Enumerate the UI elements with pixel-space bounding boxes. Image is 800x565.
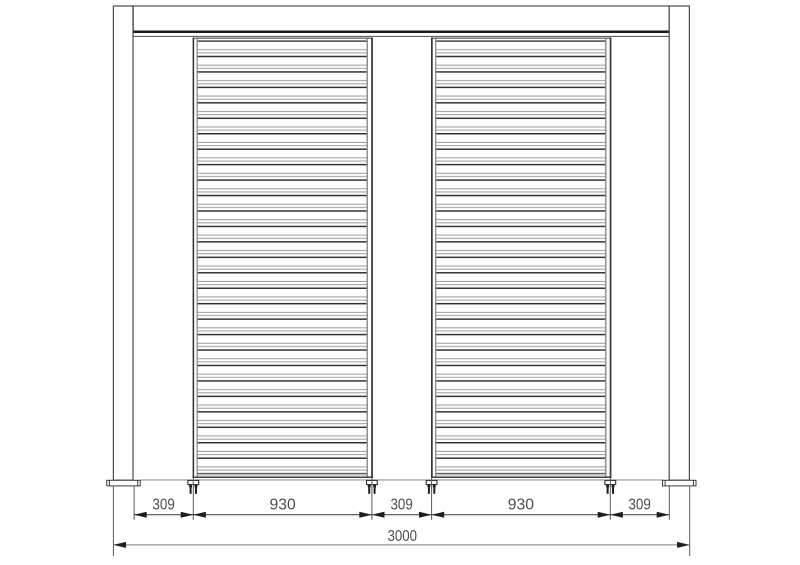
svg-text:3000: 3000 <box>388 528 418 545</box>
svg-text:930: 930 <box>508 496 534 513</box>
svg-text:309: 309 <box>628 496 651 513</box>
svg-text:930: 930 <box>269 496 295 513</box>
svg-text:309: 309 <box>152 496 175 513</box>
svg-text:309: 309 <box>390 496 413 513</box>
